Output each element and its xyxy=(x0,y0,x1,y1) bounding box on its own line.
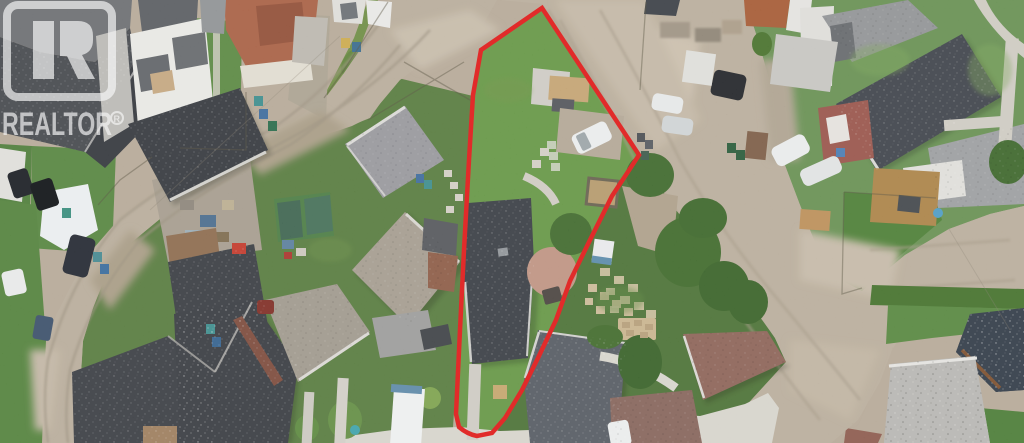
svg-text:REALTOR: REALTOR xyxy=(2,106,112,142)
svg-text:R: R xyxy=(114,114,121,124)
